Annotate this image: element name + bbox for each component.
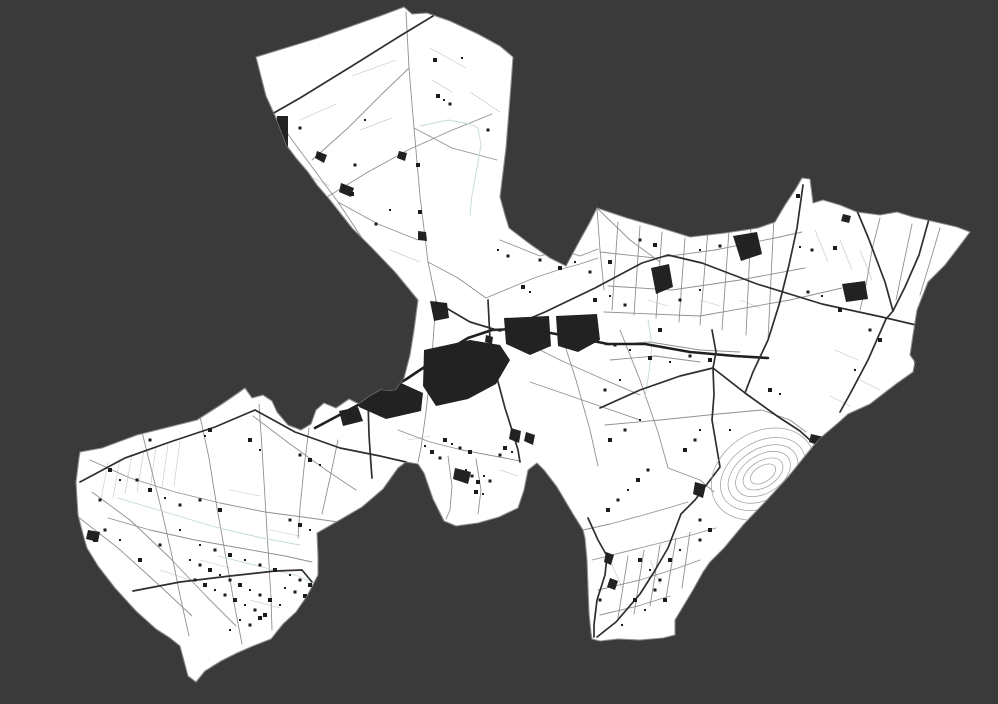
map-svg [0, 0, 998, 704]
map-figure [0, 0, 998, 704]
